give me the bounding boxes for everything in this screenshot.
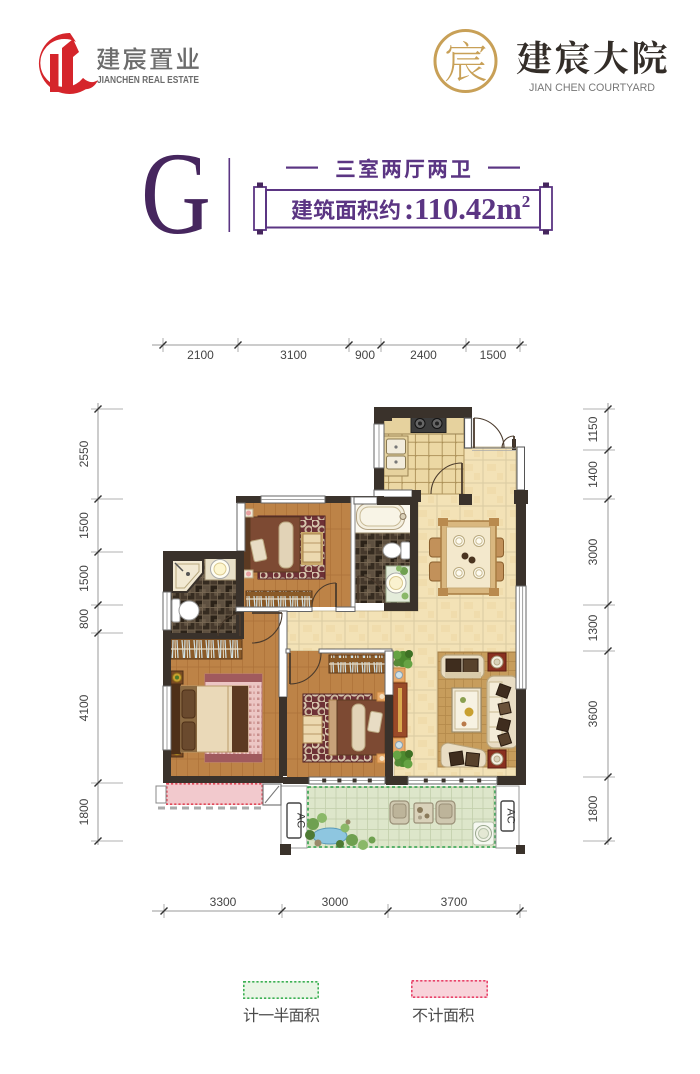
svg-text:3100: 3100: [280, 348, 307, 362]
svg-text:2400: 2400: [410, 348, 437, 362]
svg-text:3000: 3000: [322, 895, 349, 909]
svg-text:JIANCHEN REAL ESTATE: JIANCHEN REAL ESTATE: [97, 75, 199, 86]
svg-text:1400: 1400: [586, 461, 600, 488]
svg-text:2100: 2100: [187, 348, 214, 362]
svg-text:3000: 3000: [586, 538, 600, 565]
svg-text:JIAN CHEN COURTYARD: JIAN CHEN COURTYARD: [529, 82, 655, 94]
svg-text:800: 800: [77, 609, 91, 629]
svg-text:1500: 1500: [77, 565, 91, 592]
svg-text:AC: AC: [505, 808, 517, 823]
svg-text:3700: 3700: [441, 895, 468, 909]
svg-text:3300: 3300: [210, 895, 237, 909]
svg-text:1150: 1150: [586, 416, 600, 442]
svg-text:2550: 2550: [77, 440, 91, 467]
svg-text:1300: 1300: [586, 614, 600, 641]
svg-text:1500: 1500: [480, 348, 507, 362]
svg-text:4100: 4100: [77, 694, 91, 721]
svg-text:AC: AC: [295, 813, 307, 828]
svg-text:G: G: [141, 129, 211, 259]
svg-text:1500: 1500: [77, 512, 91, 539]
svg-text:1800: 1800: [586, 795, 600, 822]
svg-text::110.42m2: :110.42m2: [404, 192, 530, 226]
svg-text:900: 900: [355, 348, 375, 362]
svg-text:3600: 3600: [586, 700, 600, 727]
svg-text:1800: 1800: [77, 798, 91, 825]
